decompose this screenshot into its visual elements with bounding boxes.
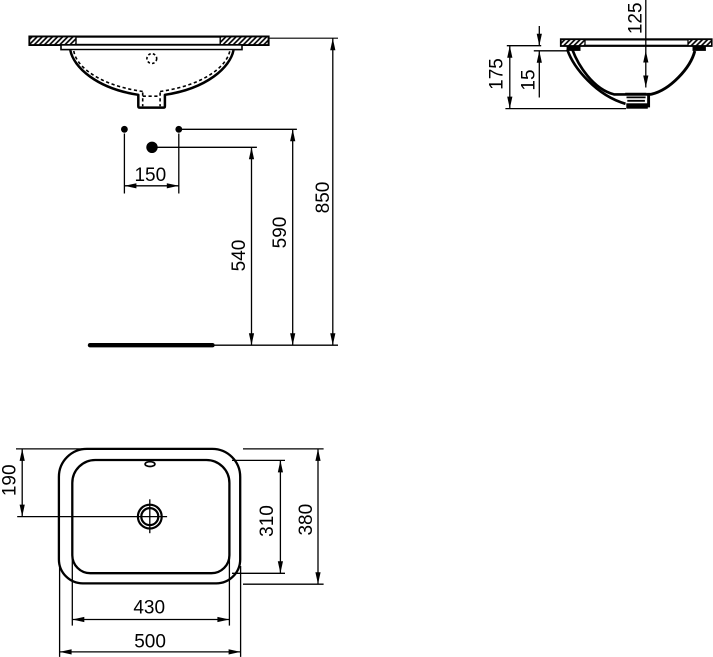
svg-text:310: 310 bbox=[257, 505, 278, 537]
svg-text:15: 15 bbox=[519, 69, 540, 90]
svg-text:430: 430 bbox=[133, 598, 165, 619]
svg-text:175: 175 bbox=[486, 58, 507, 90]
svg-text:540: 540 bbox=[229, 240, 250, 272]
svg-text:380: 380 bbox=[296, 504, 317, 536]
svg-text:500: 500 bbox=[134, 631, 166, 652]
svg-text:190: 190 bbox=[0, 464, 20, 496]
svg-text:125: 125 bbox=[626, 2, 647, 34]
svg-text:150: 150 bbox=[134, 165, 166, 186]
svg-text:590: 590 bbox=[270, 217, 291, 249]
svg-text:850: 850 bbox=[313, 182, 334, 214]
